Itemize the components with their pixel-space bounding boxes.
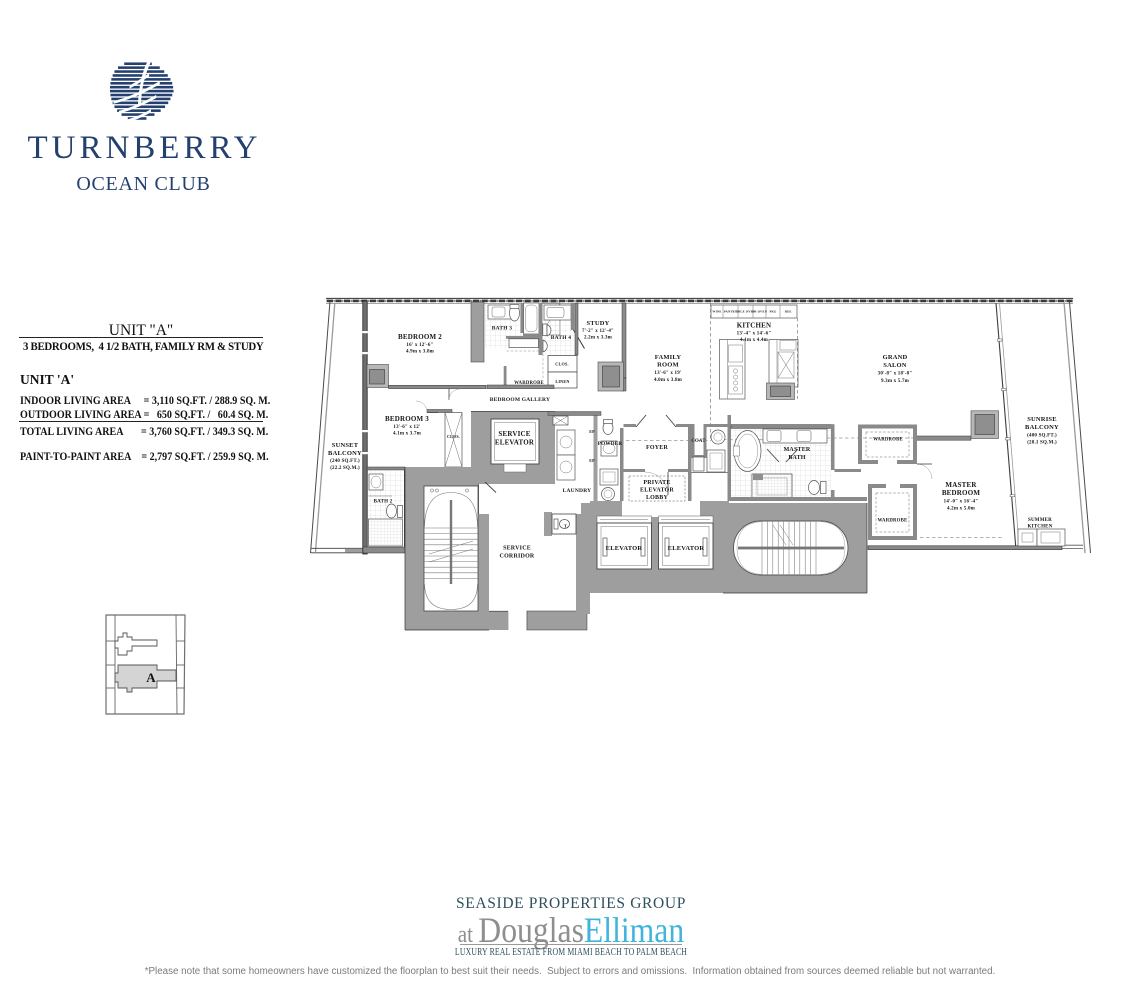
svg-text:FAMILY: FAMILY <box>655 354 682 361</box>
svg-text:COAT: COAT <box>691 439 706 444</box>
svg-text:(240 SQ.FT.): (240 SQ.FT.) <box>330 459 360 464</box>
svg-text:BEDROOM: BEDROOM <box>942 489 981 497</box>
svg-text:30′-8″ x 18′-8″: 30′-8″ x 18′-8″ <box>878 372 913 377</box>
svg-text:CLOS.: CLOS. <box>447 434 460 439</box>
svg-text:EP: EP <box>589 429 595 434</box>
svg-text:STUDY: STUDY <box>586 320 609 327</box>
svg-text:CLOS.: CLOS. <box>555 362 568 367</box>
svg-text:(400 SQ.FT.): (400 SQ.FT.) <box>1027 434 1057 439</box>
svg-text:REF.: REF. <box>785 310 792 314</box>
svg-text:PRIVATE: PRIVATE <box>643 480 670 486</box>
svg-text:SERVICE: SERVICE <box>498 430 530 438</box>
svg-text:BATH 2: BATH 2 <box>374 500 393 505</box>
svg-text:LOBBY: LOBBY <box>646 495 668 501</box>
svg-text:ELEVATOR: ELEVATOR <box>668 545 705 552</box>
svg-text:T.: T. <box>564 524 568 529</box>
svg-text:(22.2 SQ.M.): (22.2 SQ.M.) <box>330 466 360 471</box>
svg-text:13′-6″ x 12′: 13′-6″ x 12′ <box>393 425 421 430</box>
svg-text:MASTER: MASTER <box>784 447 811 453</box>
svg-text:BEDROOM GALLERY: BEDROOM GALLERY <box>490 397 550 403</box>
svg-text:BALCONY: BALCONY <box>1025 424 1059 431</box>
svg-text:BATH 3: BATH 3 <box>492 326 513 332</box>
svg-text:ELEVATOR: ELEVATOR <box>495 439 535 447</box>
svg-text:CORRIDOR: CORRIDOR <box>500 554 535 560</box>
svg-text:WINE: WINE <box>712 310 721 314</box>
svg-text:(28.1 SQ.M.): (28.1 SQ.M.) <box>1027 441 1057 446</box>
svg-text:BEDROOM 3: BEDROOM 3 <box>385 415 429 423</box>
svg-text:WARDROBE: WARDROBE <box>878 519 908 524</box>
svg-text:BATH: BATH <box>788 455 805 461</box>
svg-text:KITCHEN: KITCHEN <box>737 322 771 330</box>
svg-text:4.9m x 3.8m: 4.9m x 3.8m <box>406 350 435 355</box>
svg-text:EP: EP <box>589 458 595 463</box>
svg-text:SUNSET: SUNSET <box>332 442 359 449</box>
svg-text:PKG: PKG <box>769 310 777 314</box>
svg-text:ELEVATOR: ELEVATOR <box>606 545 643 552</box>
svg-text:2.2m x 3.3m: 2.2m x 3.3m <box>584 336 613 341</box>
svg-text:4.2m x 5.0m: 4.2m x 5.0m <box>947 507 976 512</box>
svg-text:13′-4″ x 14′-6″: 13′-4″ x 14′-6″ <box>737 332 772 337</box>
svg-text:SALON: SALON <box>883 362 907 369</box>
svg-text:16′ x 12′-6″: 16′ x 12′-6″ <box>406 343 433 348</box>
svg-text:4.1m x 4.4m: 4.1m x 4.4m <box>740 338 769 343</box>
svg-text:9.3m x 5.7m: 9.3m x 5.7m <box>881 379 910 384</box>
svg-text:BEDROOM 2: BEDROOM 2 <box>398 333 442 341</box>
svg-text:14′-0″ x 16′-4″: 14′-0″ x 16′-4″ <box>944 500 979 505</box>
svg-text:POWDER: POWDER <box>598 441 623 447</box>
svg-text:WARDROBE: WARDROBE <box>514 381 544 386</box>
svg-text:SERVICE: SERVICE <box>503 546 531 552</box>
svg-text:MASTER: MASTER <box>945 481 977 489</box>
svg-text:WARDROBE: WARDROBE <box>873 438 903 443</box>
svg-text:4.0m x 3.8m: 4.0m x 3.8m <box>654 378 683 383</box>
svg-text:BATH 4: BATH 4 <box>551 335 572 341</box>
svg-text:S/S OVEN: S/S OVEN <box>752 310 768 314</box>
svg-text:7′-2″ x 12′-4″: 7′-2″ x 12′-4″ <box>582 329 614 334</box>
svg-text:LINEN: LINEN <box>555 379 569 384</box>
svg-text:4.1m x 3.7m: 4.1m x 3.7m <box>393 432 422 437</box>
svg-text:ELEVATOR: ELEVATOR <box>640 488 674 494</box>
svg-text:13′-6″ x 19′: 13′-6″ x 19′ <box>654 371 682 376</box>
svg-text:FOYER: FOYER <box>646 445 668 451</box>
svg-text:ROOM: ROOM <box>657 362 679 369</box>
svg-text:BALCONY: BALCONY <box>328 450 362 457</box>
svg-text:SUNRISE: SUNRISE <box>1027 416 1057 423</box>
svg-text:SUMMER: SUMMER <box>1028 518 1052 523</box>
svg-text:GRAND: GRAND <box>883 354 908 361</box>
svg-text:LAUNDRY: LAUNDRY <box>563 488 592 494</box>
svg-text:KITCHEN: KITCHEN <box>1027 525 1052 530</box>
